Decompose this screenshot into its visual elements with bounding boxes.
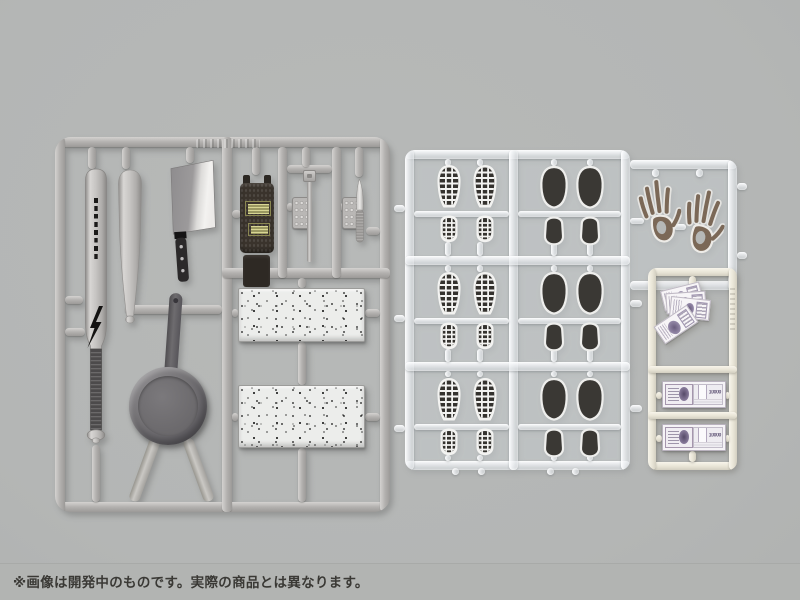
sprue-rail <box>689 451 696 462</box>
speckled-slab <box>238 288 365 342</box>
stun-gun-body <box>240 183 274 253</box>
plain-baseball-bat <box>115 169 145 324</box>
sprue-rail <box>88 147 96 169</box>
sprue-rail <box>696 169 703 177</box>
stun-gun-label <box>245 201 271 216</box>
dress-shoe-print-left <box>538 271 570 355</box>
sprue-rail <box>621 150 630 470</box>
sprue-rail <box>394 425 405 432</box>
sprue-rail <box>405 256 630 265</box>
stun-gun-grip <box>243 255 270 287</box>
sprue-rail <box>122 147 130 169</box>
sprue-rail <box>547 468 554 475</box>
sprue-rail <box>298 278 306 288</box>
banknote-portrait <box>679 430 689 444</box>
sprue-rail <box>726 392 729 399</box>
sprue-rail <box>365 309 380 317</box>
sprue-rail <box>298 342 306 385</box>
bundle-note-face <box>665 427 693 448</box>
denomination-text: 10000 <box>709 390 721 395</box>
disclaimer-text: ※画像は開発中のものです。実際の商品とは異なります。 <box>13 564 369 600</box>
sprue-rail <box>630 405 642 412</box>
money-parts-runner: 10000 10000 <box>648 268 737 470</box>
sprue-rail <box>394 315 405 322</box>
sprue-rail <box>65 296 83 304</box>
sprue-rail <box>452 468 459 475</box>
sprue-rail <box>92 445 100 502</box>
stun-gun-label <box>248 223 270 236</box>
sprue-rail <box>222 137 232 512</box>
sneaker-footprint-right <box>469 164 501 248</box>
sprue-rail <box>298 448 306 502</box>
sprue-rail <box>648 366 737 373</box>
slim-knife <box>351 178 367 246</box>
sprue-rail <box>630 300 642 307</box>
banknote-bundle: 10000 <box>662 381 726 408</box>
dress-shoe-print-left <box>538 165 570 249</box>
square-headed-rod <box>303 170 316 262</box>
sneaker-footprint-left <box>433 164 465 248</box>
cleaver <box>166 157 220 288</box>
caption-bar: ※画像は開発中のものです。実際の商品とは異なります。 <box>0 563 800 600</box>
product-photo: 10000 10000 ※画像は開発中のものです。実際の商品とは異なります。 <box>0 0 800 600</box>
dress-shoe-print-right <box>574 165 606 249</box>
banknote-portrait <box>679 387 689 401</box>
rod-shaft <box>307 182 312 262</box>
footprint-runner <box>405 150 630 470</box>
sprue-rail <box>648 268 737 276</box>
sprue-rail <box>394 205 405 212</box>
sprue-rail <box>572 468 579 475</box>
sprue-rail <box>55 137 65 512</box>
sprue-rail <box>648 412 737 419</box>
sprue-rail <box>380 137 390 512</box>
sprue-rail <box>332 147 341 278</box>
denomination-text: 10000 <box>709 433 721 438</box>
sprue-rail <box>737 252 747 259</box>
sprue-embossed-marking <box>730 288 735 330</box>
bundle-note-face <box>665 384 693 405</box>
sprue-embossed-marking <box>196 139 260 148</box>
sprue-rail <box>405 362 630 371</box>
stun-gun <box>240 175 274 287</box>
sprue-rail <box>737 183 747 190</box>
sprue-rail <box>648 462 737 470</box>
sneaker-footprint-left <box>433 271 465 355</box>
sprue-rail <box>366 227 380 235</box>
silver-parts-runner <box>55 137 390 512</box>
metal-baseball-bat <box>82 168 110 445</box>
sprue-rail <box>278 147 287 278</box>
dress-shoe-print-right <box>574 271 606 355</box>
banknote-bundle: 10000 <box>662 424 726 451</box>
dress-shoe-print-right <box>574 377 606 461</box>
rod-head <box>303 170 316 182</box>
sprue-rail <box>509 150 518 470</box>
sneaker-footprint-right <box>469 377 501 461</box>
sprue-gate-pan-leg <box>182 437 215 503</box>
frying-pan <box>129 367 207 445</box>
sprue-rail <box>252 147 260 175</box>
sprue-rail <box>478 468 485 475</box>
sprue-rail <box>365 413 380 421</box>
sneaker-footprint-left <box>433 377 465 461</box>
sneaker-footprint-right <box>469 271 501 355</box>
sprue-rail <box>355 147 363 177</box>
sprue-gate-pan-leg <box>128 437 161 503</box>
sprue-rail <box>302 147 310 167</box>
sprue-rail <box>405 150 414 470</box>
sprue-rail <box>726 435 729 442</box>
speckled-slab <box>238 385 365 448</box>
dress-shoe-print-left <box>538 377 570 461</box>
bundle-stack: 10000 <box>693 427 723 448</box>
bundle-stack: 10000 <box>693 384 723 405</box>
sprue-rail <box>630 160 737 169</box>
